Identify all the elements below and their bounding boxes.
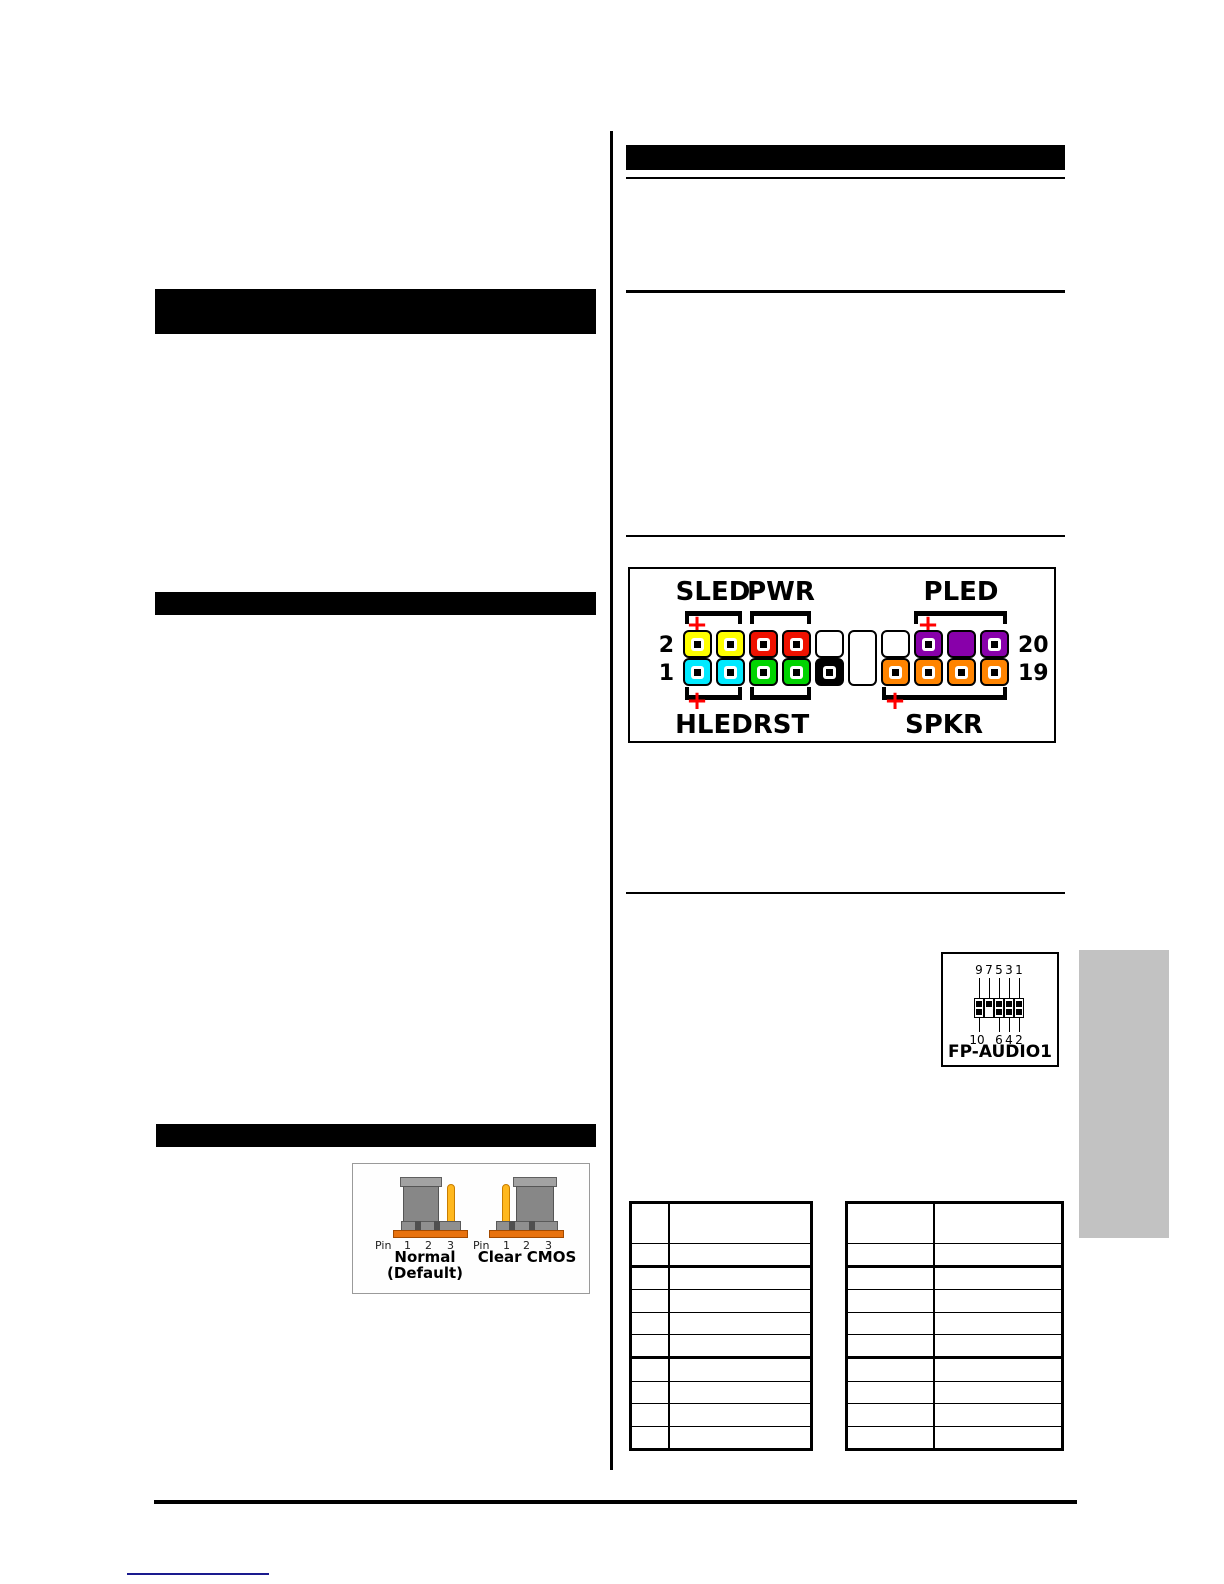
fp1-pin-cell <box>848 630 877 686</box>
fp1-pin-cell <box>947 658 976 686</box>
pin-icon <box>996 1001 1002 1007</box>
pin-icon <box>986 1001 992 1007</box>
fp-audio-pin-number: 1 <box>1015 964 1023 976</box>
pin-number-20: 20 <box>1018 635 1049 657</box>
pin-icon <box>955 666 968 679</box>
table-column-divider <box>933 1204 935 1448</box>
pin-leader-line <box>979 978 980 998</box>
pwr-bracket <box>750 611 811 624</box>
fp1-pin-cell <box>782 630 811 658</box>
table-row <box>632 1290 810 1313</box>
manual-page: SLED PWR PLED HLED RST SPKR + + + + 2 1 … <box>0 0 1224 1584</box>
table-row <box>848 1244 1061 1268</box>
fp-audio-pin-pair <box>1004 998 1014 1018</box>
pin-leader-line <box>1009 1018 1010 1032</box>
fp-audio-pin-pair <box>994 998 1004 1018</box>
table-row <box>848 1313 1061 1335</box>
fp1-pin-cell <box>914 658 943 686</box>
redacted-section-heading-3 <box>156 1124 596 1147</box>
clear-cmos-caption: Clear CMOS <box>478 1250 577 1266</box>
fp-audio-pin-number: 9 <box>975 964 983 976</box>
open-pin-1-right <box>502 1184 510 1224</box>
pin-icon <box>1006 1001 1012 1007</box>
front-panel-header-figure: SLED PWR PLED HLED RST SPKR + + + + 2 1 … <box>628 567 1056 743</box>
redacted-section-heading-4 <box>626 145 1065 170</box>
table-row <box>632 1204 810 1244</box>
pin-definition-table-right <box>845 1201 1064 1451</box>
pin-icon <box>757 638 770 651</box>
pin-icon <box>1016 1001 1022 1007</box>
polarity-plus-hled: + <box>686 688 708 714</box>
polarity-plus-spkr: + <box>884 688 906 714</box>
fp1-pin-grid <box>683 630 1013 686</box>
pin-icon <box>1006 1009 1012 1015</box>
open-pin-3-left <box>447 1184 455 1224</box>
pin-icon <box>996 1009 1002 1015</box>
pin-icon <box>988 666 1001 679</box>
section-divider-line-1 <box>626 177 1065 179</box>
pin-icon <box>724 666 737 679</box>
pin-icon <box>976 1001 982 1007</box>
table-row <box>848 1427 1061 1448</box>
pin-leader-line <box>999 1018 1000 1032</box>
pin-icon <box>790 638 803 651</box>
pin-icon <box>988 638 1001 651</box>
table-column-divider <box>668 1204 670 1448</box>
fp-audio-pin-pair <box>984 998 994 1018</box>
header-base-left <box>393 1230 468 1238</box>
clear-cmos-jumper-figure: Pin 1 2 3 Normal (Default) Pin 1 2 3 Cle… <box>352 1163 590 1294</box>
jumper-cap-body-left <box>403 1186 439 1222</box>
fp1-pin-cell <box>716 658 745 686</box>
table-row <box>848 1335 1061 1359</box>
fp1-pin-cell <box>782 658 811 686</box>
table-row <box>848 1204 1061 1244</box>
rst-label: RST <box>753 712 809 738</box>
pin-definition-table-left <box>629 1201 813 1451</box>
section-divider-line-3 <box>626 535 1065 537</box>
table-row <box>632 1404 810 1427</box>
table-row <box>848 1268 1061 1290</box>
fp1-pin-cell <box>980 630 1009 658</box>
fp1-pin-cell <box>980 658 1009 686</box>
pin-leader-line <box>989 978 990 998</box>
pin-icon <box>976 1009 982 1015</box>
pin-leader-line <box>1009 978 1010 998</box>
rst-bracket <box>750 687 811 700</box>
fp-audio-pin-number: 3 <box>1005 964 1013 976</box>
pin-icon <box>757 666 770 679</box>
fp1-pin-cell <box>749 630 778 658</box>
pin-number-19: 19 <box>1018 663 1049 685</box>
pin-icon <box>724 638 737 651</box>
fp-audio-pin-pair <box>974 998 984 1018</box>
fp1-pin-cell <box>815 658 844 686</box>
pin-icon <box>790 666 803 679</box>
pin-icon <box>691 638 704 651</box>
fp-audio-pin-number: 5 <box>995 964 1003 976</box>
table-row <box>632 1382 810 1404</box>
pin-icon <box>922 638 935 651</box>
table-row <box>632 1313 810 1335</box>
pin-word-left: Pin <box>375 1240 391 1251</box>
fp1-pin-cell <box>716 630 745 658</box>
fp1-pin-cell <box>749 658 778 686</box>
sled-label: SLED <box>676 579 751 605</box>
fp1-pin-cell <box>815 630 844 658</box>
redacted-section-heading-1 <box>155 289 596 334</box>
fp-audio1-label: FP-AUDIO1 <box>948 1042 1052 1062</box>
section-divider-line-2 <box>626 290 1065 293</box>
fp-audio1-figure: 9107563412 FP-AUDIO1 <box>941 952 1059 1067</box>
jumper-cap-body-right <box>516 1186 554 1222</box>
row-number-1: 1 <box>652 663 674 685</box>
pin-icon <box>691 666 704 679</box>
spkr-label: SPKR <box>905 712 983 738</box>
redacted-section-heading-2 <box>155 592 596 615</box>
footer-rule <box>154 1500 1077 1504</box>
fp1-pin-cell <box>683 630 712 658</box>
pin-leader-line <box>1019 1018 1020 1032</box>
table-row <box>632 1427 810 1448</box>
section-divider-line-4 <box>626 892 1065 894</box>
table-row <box>632 1244 810 1268</box>
pin-icon <box>823 666 836 679</box>
pin-icon <box>889 666 902 679</box>
fp-audio-pin-number: 7 <box>985 964 993 976</box>
fp1-pin-cell <box>683 658 712 686</box>
pin-leader-line <box>999 978 1000 998</box>
default-caption: (Default) <box>387 1266 463 1282</box>
fp-audio-pin-pair <box>1014 998 1024 1018</box>
row-number-2: 2 <box>652 635 674 657</box>
table-row <box>848 1359 1061 1382</box>
pin-leader-line <box>979 1018 980 1032</box>
chapter-tab <box>1079 950 1169 1238</box>
pwr-label: PWR <box>747 579 815 605</box>
table-row <box>632 1268 810 1290</box>
pin-leader-line <box>1019 978 1020 998</box>
pled-label: PLED <box>924 579 999 605</box>
pin-icon <box>1016 1009 1022 1015</box>
table-row <box>848 1382 1061 1404</box>
footer-link[interactable] <box>127 1573 269 1575</box>
table-row <box>632 1335 810 1359</box>
fp1-pin-cell <box>881 630 910 658</box>
table-row <box>632 1359 810 1382</box>
column-divider <box>610 131 613 1470</box>
header-base-right <box>489 1230 564 1238</box>
fp1-pin-cell <box>914 630 943 658</box>
fp1-pin-cell <box>881 658 910 686</box>
table-row <box>848 1290 1061 1313</box>
table-row <box>848 1404 1061 1427</box>
fp1-pin-cell <box>947 630 976 658</box>
pin-icon <box>922 666 935 679</box>
